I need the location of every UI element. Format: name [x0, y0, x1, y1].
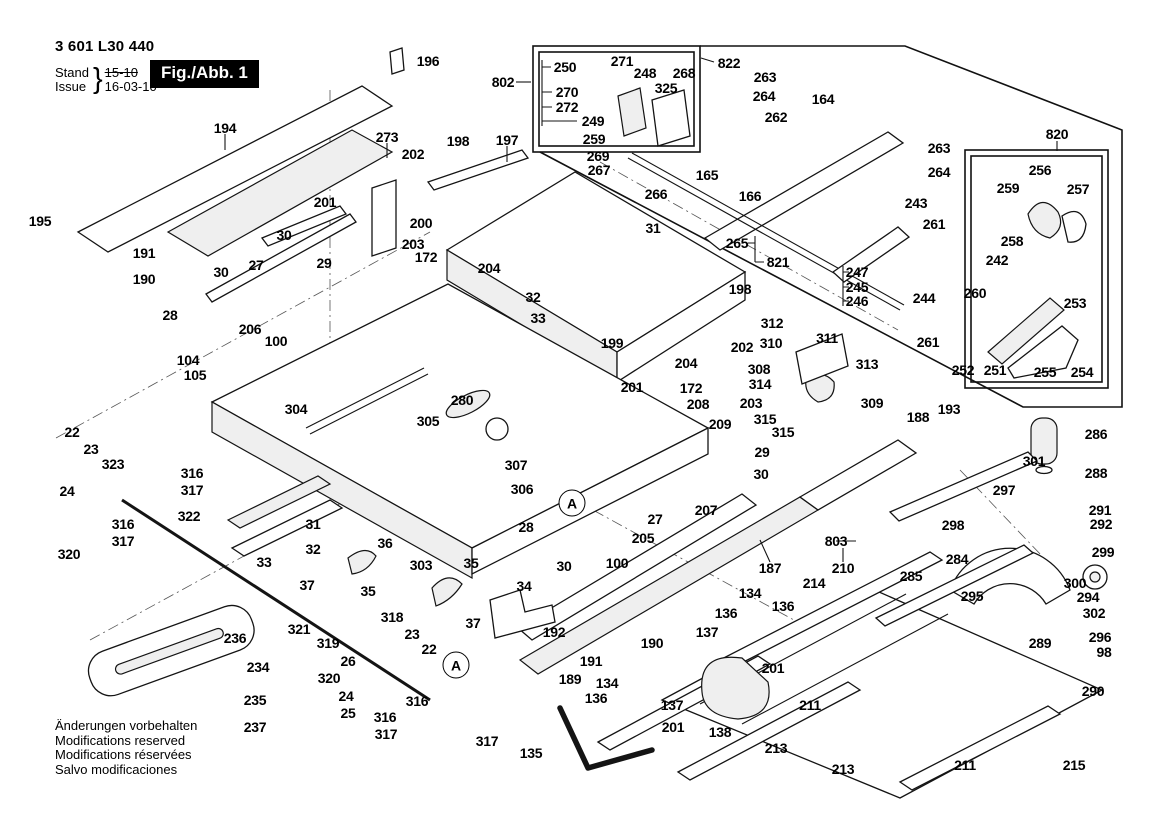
part-label-30: 30	[214, 264, 229, 280]
part-label-199: 199	[601, 335, 623, 351]
part-label-22: 22	[65, 424, 80, 440]
issue-label: Issue	[55, 80, 89, 94]
part-label-100: 100	[265, 333, 287, 349]
part-label-251: 251	[984, 362, 1006, 378]
part-label-201: 201	[314, 194, 336, 210]
part-label-285: 285	[900, 568, 922, 584]
part-label-292: 292	[1090, 516, 1112, 532]
part-label-325: 325	[655, 80, 677, 96]
stand-label: Stand	[55, 66, 89, 80]
footer-line-de: Änderungen vorbehalten	[55, 719, 197, 734]
part-label-803: 803	[825, 533, 847, 549]
part-label-32: 32	[526, 289, 541, 305]
part-label-299: 299	[1092, 544, 1114, 560]
part-label-312: 312	[761, 315, 783, 331]
part-label-323: 323	[102, 456, 124, 472]
part-label-33: 33	[257, 554, 272, 570]
part-label-272: 272	[556, 99, 578, 115]
part-label-29: 29	[317, 255, 332, 271]
part-label-270: 270	[556, 84, 578, 100]
part-label-246: 246	[846, 293, 868, 309]
part-label-262: 262	[765, 109, 787, 125]
part-label-306: 306	[511, 481, 533, 497]
part-label-164: 164	[812, 91, 834, 107]
part-label-100: 100	[606, 555, 628, 571]
part-label-33: 33	[531, 310, 546, 326]
part-label-37: 37	[466, 615, 481, 631]
modifications-note: Änderungen vorbehalten Modifications res…	[55, 719, 197, 777]
part-label-30: 30	[557, 558, 572, 574]
part-label-136: 136	[715, 605, 737, 621]
part-label-253: 253	[1064, 295, 1086, 311]
part-label-27: 27	[648, 511, 663, 527]
part-label-195: 195	[29, 213, 51, 229]
part-label-297: 297	[993, 482, 1015, 498]
part-label-266: 266	[645, 186, 667, 202]
part-label-261: 261	[923, 216, 945, 232]
part-label-302: 302	[1083, 605, 1105, 621]
part-label-317: 317	[181, 482, 203, 498]
part-label-22: 22	[422, 641, 437, 657]
part-label-313: 313	[856, 356, 878, 372]
part-label-273: 273	[376, 129, 398, 145]
parts-diagram-page: 3 601 L30 440 Stand Issue } 15-10 16-03-…	[0, 0, 1166, 824]
part-label-263: 263	[754, 69, 776, 85]
part-label-134: 134	[596, 675, 618, 691]
part-label-26: 26	[341, 653, 356, 669]
part-label-211: 211	[954, 757, 976, 773]
part-label-188: 188	[907, 409, 929, 425]
part-label-190: 190	[133, 271, 155, 287]
part-label-201: 201	[762, 660, 784, 676]
part-label-203: 203	[740, 395, 762, 411]
part-label-820: 820	[1046, 126, 1068, 142]
part-label-290: 290	[1082, 683, 1104, 699]
part-label-136: 136	[585, 690, 607, 706]
part-label-243: 243	[905, 195, 927, 211]
part-label-301: 301	[1023, 453, 1045, 469]
part-label-310: 310	[760, 335, 782, 351]
part-label-296: 296	[1089, 629, 1111, 645]
part-label-316: 316	[374, 709, 396, 725]
part-label-242: 242	[986, 252, 1008, 268]
part-label-198: 198	[447, 133, 469, 149]
part-label-209: 209	[709, 416, 731, 432]
figure-label: Fig./Abb. 1	[150, 60, 259, 88]
part-label-304: 304	[285, 401, 307, 417]
part-label-315: 315	[772, 424, 794, 440]
part-label-201: 201	[621, 379, 643, 395]
part-label-24: 24	[60, 483, 75, 499]
part-label-30: 30	[754, 466, 769, 482]
part-label-308: 308	[748, 361, 770, 377]
part-label-234: 234	[247, 659, 269, 675]
revision-block: Stand Issue } 15-10 16-03-10	[55, 63, 157, 96]
part-label-205: 205	[632, 530, 654, 546]
part-label-137: 137	[696, 624, 718, 640]
circled-marker-A: A	[443, 652, 470, 679]
part-label-311: 311	[816, 330, 838, 346]
part-label-136: 136	[772, 598, 794, 614]
part-label-821: 821	[767, 254, 789, 270]
part-label-211: 211	[799, 697, 821, 713]
part-label-202: 202	[731, 339, 753, 355]
part-label-31: 31	[306, 516, 321, 532]
part-label-23: 23	[84, 441, 99, 457]
part-label-260: 260	[964, 285, 986, 301]
part-label-36: 36	[378, 535, 393, 551]
part-label-189: 189	[559, 671, 581, 687]
part-label-322: 322	[178, 508, 200, 524]
part-label-248: 248	[634, 65, 656, 81]
part-label-264: 264	[928, 164, 950, 180]
part-label-320: 320	[58, 546, 80, 562]
part-label-25: 25	[341, 705, 356, 721]
part-label-37: 37	[300, 577, 315, 593]
part-label-265: 265	[726, 235, 748, 251]
part-label-34: 34	[517, 578, 532, 594]
part-label-261: 261	[917, 334, 939, 350]
part-label-259: 259	[583, 131, 605, 147]
part-label-134: 134	[739, 585, 761, 601]
part-label-247: 247	[846, 264, 868, 280]
part-label-235: 235	[244, 692, 266, 708]
part-label-317: 317	[375, 726, 397, 742]
part-label-166: 166	[739, 188, 761, 204]
part-label-258: 258	[1001, 233, 1023, 249]
part-label-263: 263	[928, 140, 950, 156]
part-label-236: 236	[224, 630, 246, 646]
part-label-138: 138	[709, 724, 731, 740]
part-label-286: 286	[1085, 426, 1107, 442]
circled-marker-A: A	[559, 490, 586, 517]
part-label-249: 249	[582, 113, 604, 129]
part-label-27: 27	[249, 257, 264, 273]
part-label-214: 214	[803, 575, 825, 591]
part-label-255: 255	[1034, 364, 1056, 380]
footer-line-en: Modifications reserved	[55, 734, 197, 749]
part-label-28: 28	[519, 519, 534, 535]
part-label-165: 165	[696, 167, 718, 183]
part-label-190: 190	[641, 635, 663, 651]
part-label-298: 298	[942, 517, 964, 533]
part-label-321: 321	[288, 621, 310, 637]
part-label-256: 256	[1029, 162, 1051, 178]
part-label-201: 201	[662, 719, 684, 735]
part-label-268: 268	[673, 65, 695, 81]
part-label-137: 137	[661, 697, 683, 713]
part-label-98: 98	[1097, 644, 1112, 660]
part-label-194: 194	[214, 120, 236, 136]
part-label-207: 207	[695, 502, 717, 518]
part-label-172: 172	[680, 380, 702, 396]
part-label-289: 289	[1029, 635, 1051, 651]
part-label-29: 29	[755, 444, 770, 460]
part-label-317: 317	[476, 733, 498, 749]
brace-glyph: }	[93, 63, 103, 96]
part-label-35: 35	[361, 583, 376, 599]
part-label-316: 316	[112, 516, 134, 532]
part-label-317: 317	[112, 533, 134, 549]
part-label-237: 237	[244, 719, 266, 735]
part-label-305: 305	[417, 413, 439, 429]
part-label-23: 23	[405, 626, 420, 642]
part-label-202: 202	[402, 146, 424, 162]
part-label-318: 318	[381, 609, 403, 625]
footer-line-fr: Modifications réservées	[55, 748, 197, 763]
part-label-288: 288	[1085, 465, 1107, 481]
part-label-191: 191	[133, 245, 155, 261]
part-label-309: 309	[861, 395, 883, 411]
part-label-35: 35	[464, 555, 479, 571]
part-label-267: 267	[588, 162, 610, 178]
part-label-264: 264	[753, 88, 775, 104]
part-label-259: 259	[997, 180, 1019, 196]
part-label-307: 307	[505, 457, 527, 473]
issue-value: 16-03-10	[105, 80, 157, 94]
part-label-284: 284	[946, 551, 968, 567]
part-label-244: 244	[913, 290, 935, 306]
part-label-213: 213	[765, 740, 787, 756]
part-label-271: 271	[611, 53, 633, 69]
part-label-254: 254	[1071, 364, 1093, 380]
part-label-31: 31	[646, 220, 661, 236]
part-label-197: 197	[496, 132, 518, 148]
part-label-319: 319	[317, 635, 339, 651]
part-label-200: 200	[410, 215, 432, 231]
part-label-105: 105	[184, 367, 206, 383]
part-label-295: 295	[961, 588, 983, 604]
part-label-314: 314	[749, 376, 771, 392]
part-label-135: 135	[520, 745, 542, 761]
part-label-210: 210	[832, 560, 854, 576]
part-label-30: 30	[277, 227, 292, 243]
part-label-192: 192	[543, 624, 565, 640]
part-label-28: 28	[163, 307, 178, 323]
part-label-303: 303	[410, 557, 432, 573]
part-number: 3 601 L30 440	[55, 38, 157, 55]
part-label-104: 104	[177, 352, 199, 368]
part-label-204: 204	[478, 260, 500, 276]
footer-line-es: Salvo modificaciones	[55, 763, 197, 778]
part-label-206: 206	[239, 321, 261, 337]
part-label-191: 191	[580, 653, 602, 669]
part-label-193: 193	[938, 401, 960, 417]
part-label-32: 32	[306, 541, 321, 557]
part-label-257: 257	[1067, 181, 1089, 197]
part-label-802: 802	[492, 74, 514, 90]
part-label-213: 213	[832, 761, 854, 777]
part-label-316: 316	[406, 693, 428, 709]
part-label-198: 198	[729, 281, 751, 297]
part-label-280: 280	[451, 392, 473, 408]
part-label-215: 215	[1063, 757, 1085, 773]
part-label-294: 294	[1077, 589, 1099, 605]
part-label-250: 250	[554, 59, 576, 75]
part-label-320: 320	[318, 670, 340, 686]
part-label-172: 172	[415, 249, 437, 265]
part-label-252: 252	[952, 362, 974, 378]
part-label-196: 196	[417, 53, 439, 69]
part-label-187: 187	[759, 560, 781, 576]
part-label-208: 208	[687, 396, 709, 412]
stand-value-struck: 15-10	[105, 66, 157, 80]
part-label-316: 316	[181, 465, 203, 481]
part-label-204: 204	[675, 355, 697, 371]
title-block: 3 601 L30 440 Stand Issue } 15-10 16-03-…	[55, 38, 157, 96]
part-label-822: 822	[718, 55, 740, 71]
part-label-24: 24	[339, 688, 354, 704]
